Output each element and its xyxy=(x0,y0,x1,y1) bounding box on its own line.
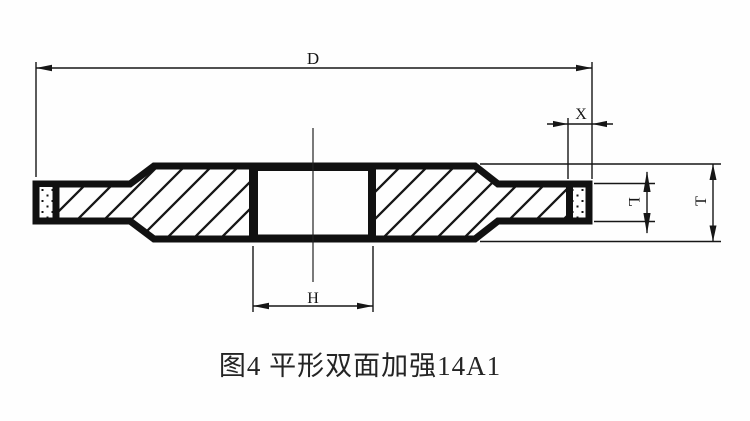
l-arrow-up xyxy=(643,171,650,192)
l-arrow-down xyxy=(643,213,650,234)
x-arrow-right xyxy=(592,121,607,127)
h-arrow-right xyxy=(357,303,373,310)
t-arrow-up xyxy=(710,164,717,180)
dimension-label-l: L xyxy=(625,197,642,207)
d-arrow-left xyxy=(36,65,52,72)
right-edge-bar xyxy=(566,181,573,225)
x-arrow-left xyxy=(553,121,568,127)
abrasive-layer-right xyxy=(573,188,586,218)
dimension-label-h: H xyxy=(307,290,319,307)
dimension-label-x: X xyxy=(575,106,587,123)
abrasive-layer-left xyxy=(40,187,53,218)
h-arrow-left xyxy=(253,303,269,310)
dimension-x: X xyxy=(547,106,613,179)
t-arrow-down xyxy=(710,226,717,242)
left-edge-bar xyxy=(53,181,60,225)
figure-page: D X L T xyxy=(0,0,750,421)
dimension-l: L xyxy=(594,171,655,234)
dimension-label-t: T xyxy=(693,196,710,206)
d-arrow-right xyxy=(576,65,592,72)
dimension-d: D xyxy=(36,49,592,179)
figure-caption: 图4 平形双面加强14A1 xyxy=(150,344,570,383)
dimension-label-d: D xyxy=(307,49,319,68)
